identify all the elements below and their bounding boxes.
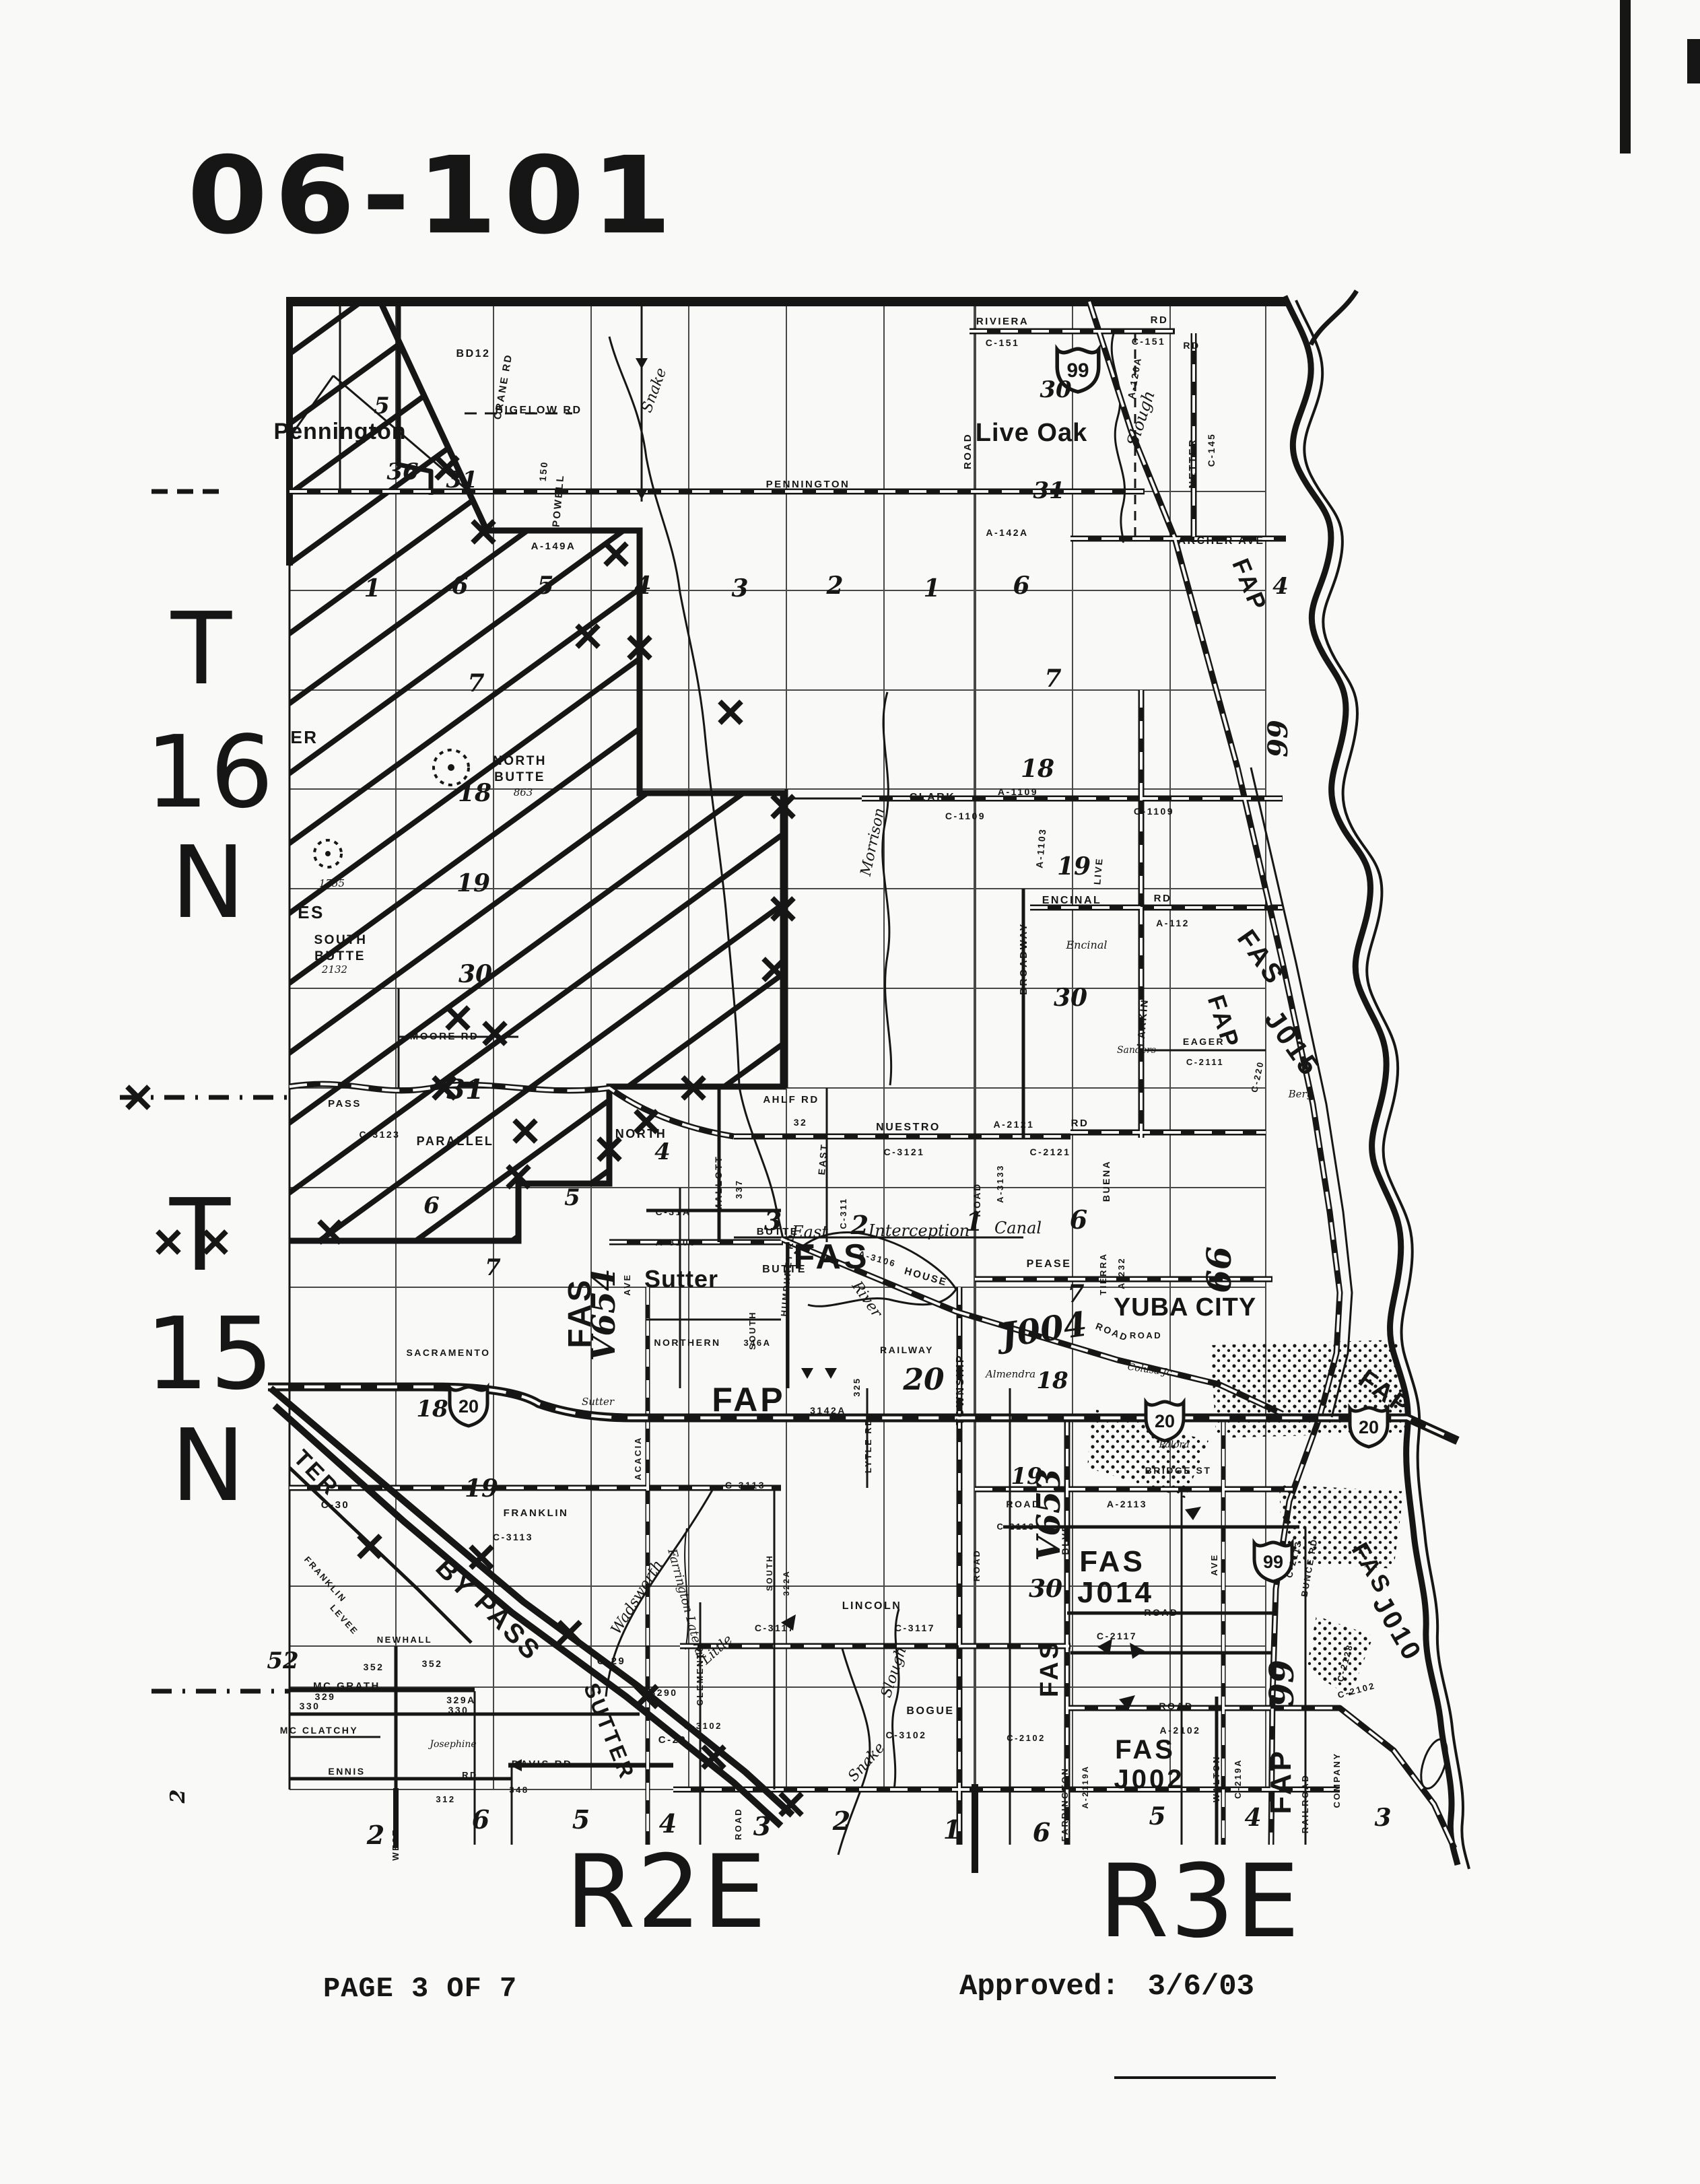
label-ahlf-rd: AHLF RD: [763, 1094, 819, 1105]
label-ave: AVE: [622, 1273, 632, 1295]
label-4: 4: [1272, 573, 1289, 600]
label-c-145: C-145: [1206, 433, 1217, 467]
label-butte: BUTTE: [314, 949, 366, 963]
label-16: 16: [145, 714, 275, 830]
label-2132: 2132: [321, 963, 347, 976]
label-863: 863: [514, 786, 533, 798]
x-mark: [720, 702, 741, 723]
label-yuba-city: YUBA CITY: [1114, 1293, 1256, 1322]
label-r2e: R2E: [566, 1834, 768, 1951]
label-36: 36: [386, 458, 418, 485]
label-archer-ave: ARCHER AVE: [1178, 535, 1264, 547]
label-franklin: FRANKLIN: [302, 1555, 349, 1604]
label-rd: RD: [462, 1770, 478, 1780]
label-ave: AVE: [1209, 1553, 1219, 1575]
label-1: 1: [923, 574, 940, 603]
label-bogue: BOGUE: [906, 1705, 954, 1717]
label-c-3102: C-3102: [683, 1721, 722, 1731]
label-snake: Snake: [845, 1740, 889, 1785]
label-road: ROAD: [1006, 1499, 1040, 1509]
label-walton: WALTON: [1211, 1755, 1221, 1802]
label-c-3117: C-3117: [895, 1623, 935, 1633]
label-31: 31: [1033, 477, 1064, 504]
label-colusa-jc: Colusa Jc: [1127, 1362, 1173, 1379]
label-c-1109: C-1109: [1134, 806, 1174, 817]
label-a-3133: A-3133: [995, 1164, 1005, 1203]
label-road: ROAD: [1159, 1701, 1193, 1711]
highway-shield-20: 20: [1350, 1408, 1388, 1447]
label-329a: 329A: [446, 1695, 475, 1705]
label-a-142a: A-142A: [986, 527, 1028, 538]
label-pennington: PENNINGTON: [766, 479, 850, 490]
label-c-2111: C-2111: [1186, 1057, 1224, 1067]
label-powell: POWELL: [551, 473, 567, 527]
label-c-2117: C-2117: [1097, 1631, 1137, 1641]
label-348: 348: [509, 1785, 529, 1795]
label-j014: J014: [1077, 1576, 1154, 1609]
label-18: 18: [416, 1396, 448, 1423]
label-tierra: TIERRA: [1098, 1252, 1108, 1295]
label-netter: NETTER: [1187, 438, 1198, 489]
label-32: 32: [794, 1117, 808, 1128]
label-c-3102: C-3102: [886, 1730, 927, 1740]
label-j015: J015: [1258, 1004, 1326, 1083]
shield-number: 99: [1263, 1552, 1283, 1572]
label-2: 2: [850, 1210, 869, 1240]
label-3: 3: [1374, 1804, 1391, 1832]
label-2: 2: [366, 1820, 384, 1850]
label-19: 19: [465, 1474, 498, 1503]
label-a-1103: A-1103: [1033, 827, 1048, 868]
label-4: 4: [659, 1808, 677, 1839]
label-6: 6: [423, 1192, 440, 1219]
label-acacia: ACACIA: [633, 1436, 643, 1480]
scanned-map-sheet: 06-101: [0, 0, 1700, 2184]
label-r3e: R3E: [1099, 1843, 1301, 1960]
label-n: N: [171, 1408, 247, 1524]
label-3290: 3290: [650, 1687, 677, 1698]
label-a-3106: A-3106: [656, 1237, 697, 1248]
label-parallel: PARALLEL: [417, 1134, 494, 1148]
label-sutter: Sutter: [582, 1396, 615, 1408]
label-pass: PASS: [328, 1098, 362, 1110]
label-fas: FAS: [793, 1237, 869, 1276]
label-sacramento: SACRAMENTO: [406, 1347, 490, 1358]
label-live-oak: Live Oak: [976, 419, 1087, 447]
yuba-city-urban-area: [1087, 1340, 1406, 1697]
label-bridge-st: BRIDGE ST: [1145, 1465, 1212, 1476]
label-5: 5: [537, 572, 553, 600]
approval-block: Approved:3/6/03: [959, 1970, 1254, 2004]
label-a-112: A-112: [1156, 918, 1190, 928]
label-levee: LEVEE: [328, 1602, 360, 1637]
label-almendra: Almendra: [984, 1368, 1035, 1380]
page-indicator: PAGE 3 OF 7: [323, 1973, 517, 2005]
label-5: 5: [374, 393, 390, 419]
label-c-3123: C-3123: [360, 1129, 401, 1140]
label-4: 4: [634, 572, 651, 600]
label-c-3117: C-3117: [755, 1623, 795, 1633]
label-a-2113: A-2113: [1107, 1499, 1147, 1509]
label-south: SOUTH: [765, 1555, 774, 1592]
label-encinal: ENCINAL: [1042, 895, 1102, 906]
shield-number: 20: [458, 1396, 479, 1417]
label-1: 1: [364, 574, 380, 603]
approved-date: 3/6/03: [1148, 1970, 1254, 2004]
label-j010: J010: [1367, 1591, 1428, 1667]
label-6: 6: [1033, 1817, 1050, 1847]
label-c-2113: C-2113: [997, 1522, 1035, 1532]
label-mallott: MALLOTT: [713, 1155, 724, 1212]
label-4: 4: [1244, 1804, 1261, 1832]
label-butte: BUTTE: [494, 770, 545, 784]
label-3: 3: [731, 574, 748, 603]
label-nuestro: NUESTRO: [876, 1122, 941, 1133]
label-company: COMPANY: [1332, 1752, 1342, 1808]
label-sutter: SUTTER: [579, 1680, 640, 1783]
label-a-2121: A-2121: [994, 1119, 1035, 1130]
label-larkin: LARKIN: [1135, 998, 1151, 1047]
river-top-inlet: [1311, 291, 1357, 345]
label-20: 20: [902, 1363, 945, 1397]
label-31: 31: [446, 467, 477, 493]
label-6: 6: [472, 1804, 489, 1835]
label-5: 5: [1149, 1802, 1165, 1831]
label-31: 31: [446, 1074, 484, 1105]
label-wadsworth: Wadsworth: [608, 1557, 667, 1637]
label-t: T: [170, 591, 233, 707]
label-325: 325: [852, 1377, 862, 1396]
label-sanders: Sanders: [1117, 1045, 1156, 1056]
label-c-31a: C-31A: [656, 1206, 691, 1217]
label-north: NORTH: [493, 754, 547, 768]
label-c-30: C-30: [321, 1499, 350, 1511]
label-18: 18: [1036, 1367, 1068, 1394]
label-railroad: RAILROAD: [1300, 1774, 1310, 1834]
label-312: 312: [436, 1794, 455, 1804]
label-150: 150: [537, 460, 550, 481]
label-c-3113: C-3113: [725, 1480, 766, 1491]
label-snake: Snake: [638, 366, 670, 415]
label-30: 30: [458, 960, 492, 988]
label-lytle-rd: LYTLE RD: [863, 1418, 873, 1473]
label-3142a: 3142A: [810, 1405, 846, 1416]
label-fap: FAP: [712, 1381, 785, 1419]
label-c-151: C-151: [1132, 336, 1166, 347]
label-south: SOUTH: [747, 1311, 757, 1350]
label-a-2102: A-2102: [1160, 1725, 1201, 1736]
label-c-151: C-151: [986, 337, 1020, 348]
label-4: 4: [654, 1138, 671, 1165]
label-7: 7: [485, 1254, 501, 1281]
label-palora: Palora: [1158, 1439, 1189, 1450]
label-c-1109: C-1109: [945, 811, 986, 821]
label-2: 2: [832, 1806, 850, 1836]
label-30: 30: [1054, 984, 1087, 1012]
label-township: TOWNSHIP: [955, 1354, 966, 1425]
label-fas: FAS: [1115, 1735, 1176, 1765]
label-c-3121: C-3121: [884, 1147, 925, 1157]
label-7: 7: [1044, 664, 1061, 693]
label-broadway: BROADWAY: [1018, 922, 1029, 995]
label-live: LIVE: [1091, 856, 1105, 885]
label-c-2121: C-2121: [1030, 1147, 1071, 1157]
label-1755: 1755: [319, 877, 345, 889]
label-slough: Slough: [878, 1645, 910, 1700]
highway-shield-20: 20: [1146, 1402, 1184, 1441]
label-road: ROAD: [733, 1808, 743, 1840]
label-c-219a: C-219A: [1233, 1759, 1243, 1799]
label-encinal: Encinal: [1065, 939, 1107, 951]
label-road: ROAD: [972, 1549, 982, 1581]
label-riviera: RIVIERA: [976, 316, 1029, 327]
scan-artifacts: [1620, 0, 1700, 153]
live-oak-slough: [1112, 331, 1124, 543]
label-322a: 322A: [782, 1570, 791, 1596]
shield-number: 20: [1359, 1417, 1379, 1437]
label-1: 1: [965, 1206, 983, 1237]
label-a-232: A-232: [1116, 1257, 1126, 1289]
label-c-311: C-311: [838, 1197, 848, 1229]
label-352: 352: [364, 1662, 384, 1672]
label-5: 5: [564, 1184, 580, 1211]
label-30: 30: [1040, 376, 1072, 403]
label-rd: RD: [1071, 1118, 1089, 1129]
label-northern: NORTHERN: [654, 1337, 720, 1348]
label-west: WEST: [390, 1829, 401, 1861]
label-es: ES: [298, 902, 325, 922]
label-interception: Interception: [868, 1221, 970, 1240]
approved-label: Approved:: [959, 1970, 1120, 2004]
label-bigelow-rd: BIGELOW RD: [496, 405, 582, 416]
nuestro-rd: [734, 1132, 1266, 1136]
label-2: 2: [166, 1789, 190, 1804]
label-5: 5: [572, 1804, 590, 1835]
label-fap: FAP: [1264, 1748, 1297, 1814]
label-buena: BUENA: [1101, 1160, 1112, 1202]
label-rd: RD: [1183, 340, 1200, 351]
label-newhall: NEWHALL: [377, 1635, 433, 1645]
label-pennington: Pennington: [274, 419, 407, 444]
label-15: 15: [145, 1296, 275, 1412]
label-j002: J002: [1114, 1765, 1185, 1794]
label-3: 3: [753, 1811, 771, 1841]
label-south: SOUTH: [314, 933, 368, 947]
label-road: ROAD: [1144, 1607, 1178, 1618]
label-a-2119a: A-2119A: [1081, 1765, 1090, 1809]
label-blvd: BLVD: [1060, 1523, 1070, 1555]
label-99: 99: [1262, 1660, 1301, 1707]
label-352: 352: [422, 1658, 443, 1669]
highway-shield-20: 20: [450, 1387, 487, 1426]
label-pease: PEASE: [1027, 1258, 1072, 1270]
label-329: 329: [315, 1691, 336, 1702]
label-18: 18: [458, 779, 491, 807]
label-bd12: BD12: [456, 348, 491, 360]
label-road: ROAD: [962, 433, 974, 469]
label-ennis: ENNIS: [328, 1766, 365, 1777]
label-house: HOUSE: [903, 1265, 949, 1288]
label-canal: Canal: [994, 1219, 1042, 1237]
label-330: 330: [300, 1701, 320, 1711]
shield-number: 20: [1155, 1411, 1175, 1431]
label-farrington: FARRINGTON: [1060, 1767, 1070, 1842]
label-337: 337: [734, 1179, 744, 1198]
label-2: 2: [825, 572, 843, 600]
label-6: 6: [451, 572, 468, 600]
label-7: 7: [467, 669, 484, 697]
label-1: 1: [943, 1814, 961, 1845]
label-330: 330: [448, 1705, 469, 1715]
label-clark: CLARK: [910, 792, 956, 803]
label-a-1109: A-1109: [998, 786, 1038, 797]
label-berg: Berg: [1288, 1088, 1314, 1100]
label-franklin: FRANKLIN: [504, 1507, 569, 1519]
label-er: ER: [290, 727, 318, 747]
label-sutter: Sutter: [644, 1265, 718, 1293]
label-road: ROAD: [1094, 1320, 1130, 1343]
label-c-20: C-20: [658, 1734, 687, 1746]
label-rd: RD: [1154, 893, 1172, 904]
label-30: 30: [1029, 1575, 1062, 1603]
map-canvas: 9920202099 T16NT15NR2ER3EPenningtonBD12C…: [0, 0, 1700, 2184]
label-mc-clatchy: MC CLATCHY: [280, 1725, 359, 1736]
label-6: 6: [1013, 572, 1029, 600]
label-davis-rd: DAVIS RD: [512, 1759, 573, 1770]
label-a-149a: A-149A: [531, 541, 576, 552]
label-c-2102: C-2102: [1007, 1733, 1046, 1743]
signature-line: [1114, 2076, 1276, 2079]
label-n: N: [171, 825, 247, 941]
label-railway: RAILWAY: [880, 1344, 934, 1355]
label-lincoln: LINCOLN: [842, 1600, 902, 1612]
label-66: 66: [1199, 1246, 1239, 1293]
label-6: 6: [1070, 1204, 1087, 1235]
label-mc-grath: MC GRATH: [313, 1680, 380, 1692]
label-moore-rd: MOORE RD: [410, 1031, 479, 1042]
label-josephine: Josephine: [428, 1739, 476, 1750]
label-v654: V654: [585, 1268, 623, 1361]
label-c-29: C-29: [597, 1656, 626, 1667]
label-19: 19: [1057, 852, 1091, 881]
label-c-3113: C-3113: [493, 1532, 533, 1542]
x-mark: [359, 1536, 380, 1557]
label-river: River: [848, 1278, 885, 1322]
label-fas: FAS: [1035, 1639, 1064, 1697]
label-t: T: [169, 1178, 232, 1293]
label-7: 7: [1067, 1280, 1084, 1308]
label-road: ROAD: [1130, 1330, 1162, 1340]
label-52: 52: [267, 1647, 298, 1674]
label-rd: RD: [1151, 314, 1169, 326]
label-99: 99: [1262, 720, 1294, 757]
label-19: 19: [456, 869, 490, 897]
label-18: 18: [1021, 755, 1054, 783]
label-fas: FAS: [1079, 1545, 1145, 1578]
